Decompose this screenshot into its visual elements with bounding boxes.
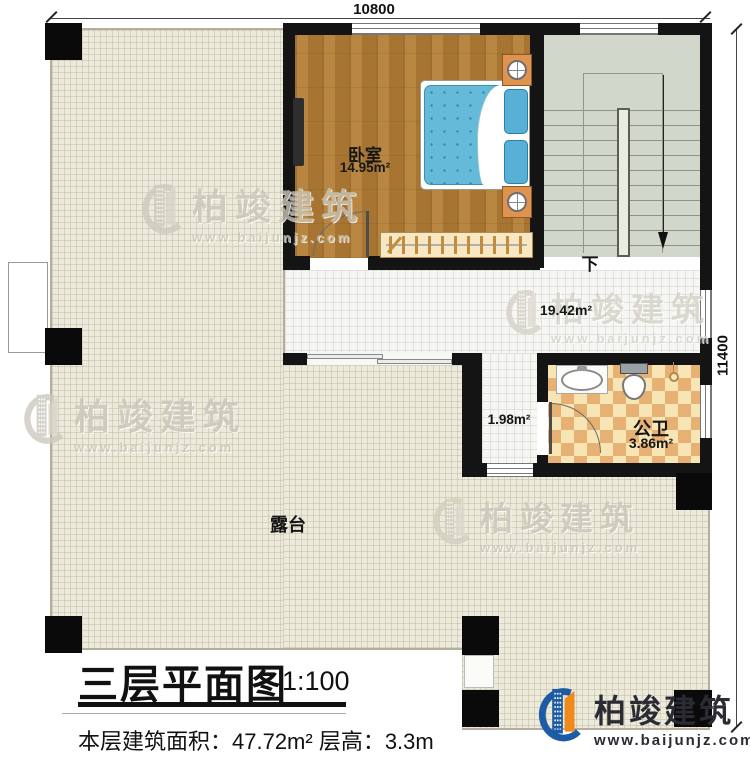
dimension-top-value: 10800: [324, 1, 424, 18]
sliding-door-panel: [377, 359, 452, 364]
terrace-hallway-edge: [283, 270, 285, 353]
column: [45, 616, 82, 653]
hallway-floor: [285, 270, 700, 353]
column: [676, 473, 712, 510]
tv: [293, 98, 304, 166]
brand-logo: 柏竣建筑 www.baijunjz.com: [534, 686, 750, 749]
wall-bedroom-bottom-b: [368, 256, 540, 270]
stair-railing: [617, 108, 630, 257]
title-underline-thick: [78, 702, 346, 707]
plan-scale: 1:100: [282, 666, 350, 697]
sink-basin: [561, 369, 603, 391]
dimension-line-right: [736, 30, 737, 728]
dimension-right-value: 11400: [715, 308, 732, 404]
pillow: [504, 89, 528, 134]
terrace-floor-left: [50, 28, 283, 650]
exterior-ledge: [8, 262, 48, 353]
dimension-line-top: [50, 18, 710, 19]
plan-floor-info: 本层建筑面积：47.72m² 层高：3.3m: [78, 724, 434, 756]
toilet-tank: [620, 363, 648, 374]
stair-direction-line: [663, 75, 664, 233]
bedroom-area: 14.95m²: [329, 160, 401, 175]
title-underline-thin: [62, 713, 346, 714]
stairwell-window: [580, 23, 658, 35]
bathroom-door-leaf: [549, 402, 552, 454]
wall-bathroom-left-a: [537, 353, 548, 402]
stair-down-arrow: [658, 232, 668, 249]
hallway-window: [700, 290, 712, 338]
brand-logo-text: 柏竣建筑: [594, 686, 750, 732]
corridor-area: 1.98m²: [482, 412, 536, 427]
corridor-window: [487, 463, 533, 477]
wall-hall-bottom-a: [283, 353, 307, 365]
sink-faucet: [577, 366, 587, 371]
wall-corridor-left: [462, 353, 482, 477]
bedroom-door-leaf: [366, 211, 369, 257]
wardrobe-hangers: [389, 236, 527, 254]
brand-logo-icon: [534, 687, 584, 749]
column: [462, 616, 499, 655]
stairs-down-label: 下: [574, 250, 606, 275]
table-lamp: [507, 192, 527, 212]
table-lamp: [507, 60, 527, 80]
dimension-tick: [699, 11, 711, 23]
brand-logo-url: www.baijunjz.com: [594, 732, 750, 749]
bathroom-window: [700, 385, 712, 438]
wall-bathroom-right-a: [700, 338, 712, 385]
sliding-door-panel: [307, 354, 383, 359]
wall-bottom-a: [462, 463, 487, 477]
hallway-area: 19.42m²: [535, 302, 597, 318]
pillow: [504, 140, 528, 184]
bathroom-area: 3.86m²: [622, 435, 680, 451]
column: [462, 690, 499, 727]
terrace-floor-middle: [283, 365, 462, 650]
wall-stair-right: [700, 23, 712, 290]
dimension-tick: [45, 11, 57, 23]
column: [45, 23, 82, 60]
terrace-name: 露台: [261, 511, 315, 537]
floor-plan: 柏竣建筑 www.baijunjz.com 柏竣建筑 www.baijunjz.…: [0, 0, 750, 758]
wall-bedroom-bottom-a: [283, 256, 310, 270]
column: [45, 328, 82, 365]
bedroom-window: [352, 23, 480, 35]
floor-drain: [669, 372, 679, 382]
corridor-floor: [482, 353, 537, 463]
terrace-parapet-segment: [464, 655, 494, 688]
